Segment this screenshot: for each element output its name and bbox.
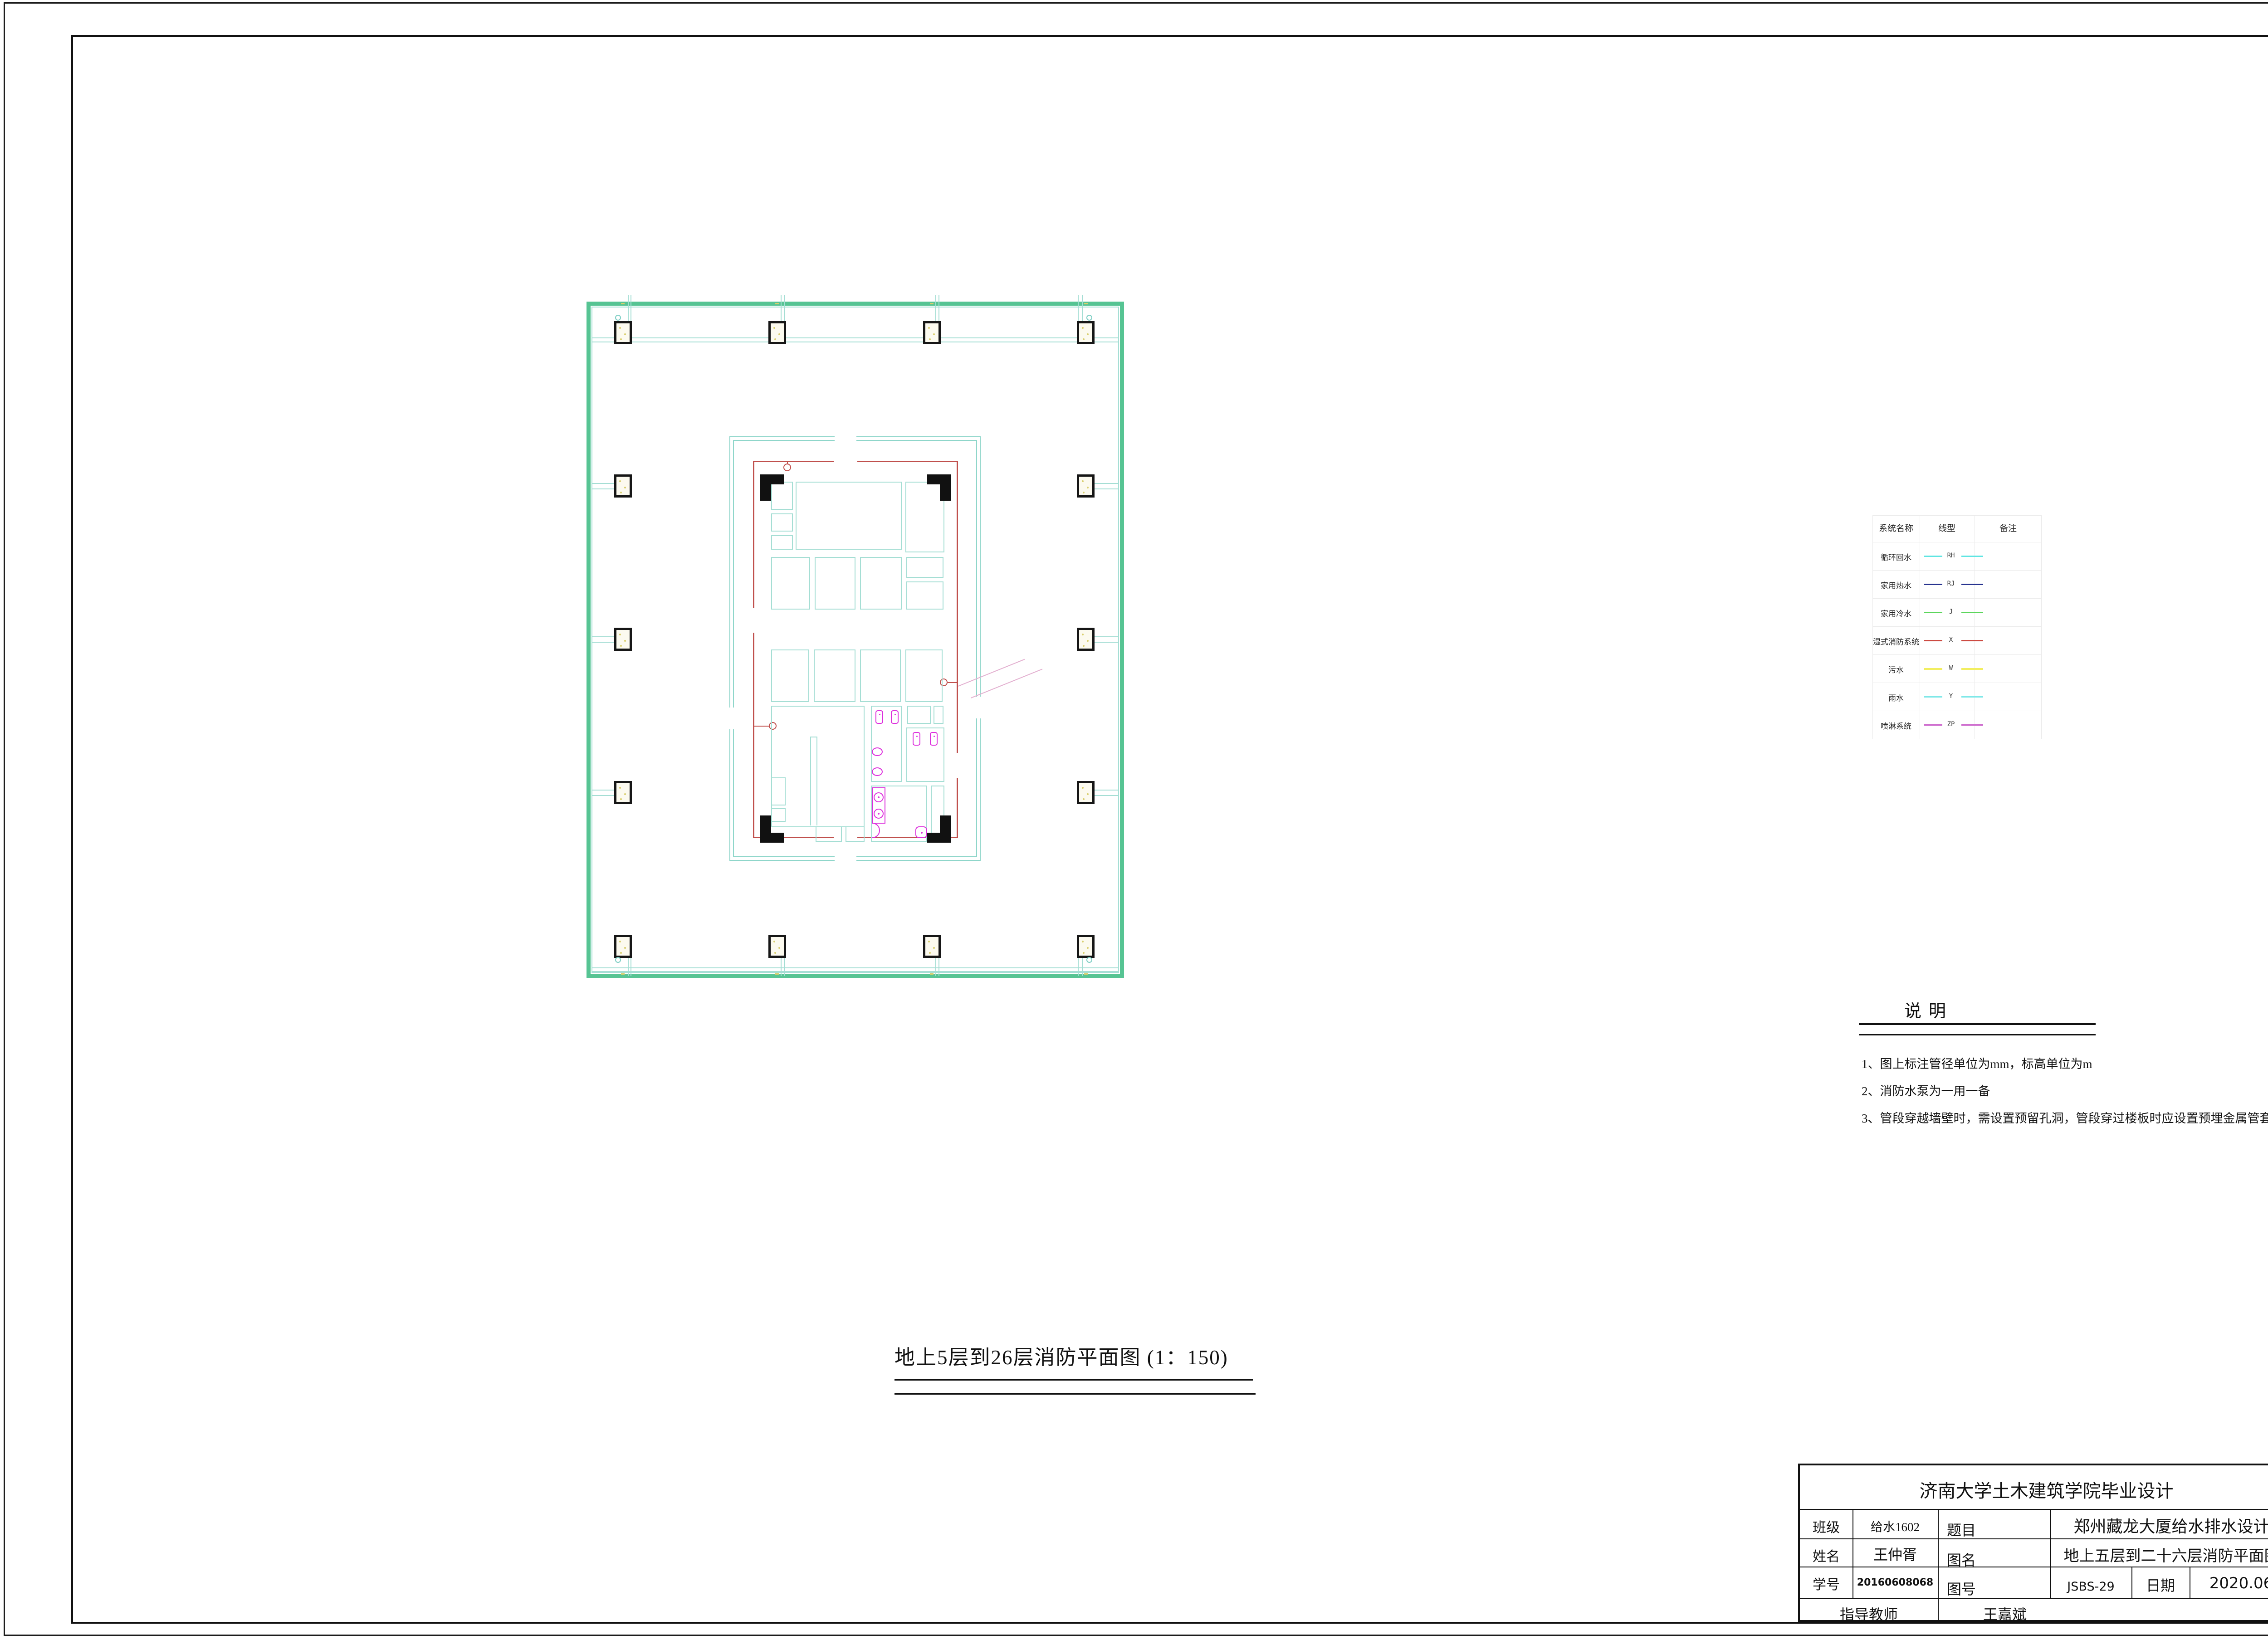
wall-stub	[591, 642, 614, 643]
grid-tick	[631, 958, 631, 976]
legend-header-system: 系统名称	[1869, 522, 1923, 534]
note-item: 2、消防水泵为一用一备	[1862, 1078, 2268, 1105]
wall-stub	[1095, 636, 1119, 637]
class-value: 给水1602	[1853, 1517, 1938, 1535]
axis-bubble-icon	[615, 957, 621, 963]
titleblock-header: 济南大学土木建筑学院毕业设计	[1800, 1476, 2268, 1503]
advisor-value: 王嘉斌	[1983, 1603, 2027, 1624]
axis-tick-icon	[1084, 973, 1088, 975]
caption-underline	[894, 1393, 1256, 1395]
drawing-no-value: JSBS-29	[2050, 1580, 2131, 1594]
column-marker	[1077, 321, 1095, 344]
subject-label: 题目	[1947, 1519, 1976, 1540]
fire-hydrant-icon	[783, 464, 791, 471]
notes-underline	[1859, 1034, 2096, 1035]
column-marker	[923, 321, 941, 344]
wall-stub	[1095, 488, 1119, 489]
title-block: 济南大学土木建筑学院毕业设计 班级 给水1602 题目 郑州藏龙大厦给水排水设计…	[1798, 1464, 2268, 1622]
wall-stub	[591, 488, 614, 489]
student-id-value: 20160608068	[1853, 1577, 1938, 1588]
grid-tick	[938, 958, 939, 976]
grid-tick	[784, 958, 785, 976]
column-marker	[1077, 474, 1095, 498]
wall-stub	[591, 790, 614, 791]
wall-stub	[1095, 790, 1119, 791]
advisor-label: 指导教师	[1800, 1603, 1938, 1624]
door-gap	[835, 854, 856, 862]
note-item: 3、管段穿越墙壁时，需设置预留孔洞，管段穿过楼板时应设置预埋金属管套	[1862, 1105, 2268, 1132]
column-marker	[614, 935, 632, 958]
grid-tick	[1078, 958, 1079, 976]
grid-tick	[628, 958, 629, 976]
grid-tick	[781, 958, 782, 976]
wall-stub	[1095, 483, 1119, 484]
legend-header-remark: 备注	[1981, 522, 2035, 534]
date-value: 2020.06	[2190, 1574, 2268, 1592]
axis-tick-icon	[621, 303, 625, 304]
sheet-inner-frame	[71, 35, 2268, 1624]
toilet-icon	[872, 767, 883, 776]
urinal-icon	[875, 710, 883, 724]
wall-stub	[591, 483, 614, 484]
column-marker	[614, 474, 632, 498]
slab-line	[591, 967, 1119, 968]
drawing-no-label: 图号	[1947, 1578, 1976, 1599]
axis-bubble-icon	[1086, 957, 1092, 963]
axis-tick-icon	[775, 303, 779, 304]
axis-tick-icon	[930, 973, 934, 975]
grid-tick	[631, 295, 631, 321]
drawing-sheet: 系统名称 线型 备注 循环回水 RH 家用热水 RJ 家用冷水 J 湿式消防系统…	[0, 0, 2268, 1640]
column-marker	[768, 935, 786, 958]
slab-line	[591, 337, 1119, 338]
legend-header-linetype: 线型	[1920, 522, 1974, 534]
caption-underline	[894, 1379, 1253, 1381]
slab-line	[591, 971, 1119, 972]
column-marker	[614, 781, 632, 804]
column-marker	[923, 935, 941, 958]
sink-icon	[915, 826, 927, 838]
door-gap	[728, 708, 735, 729]
grid-tick	[938, 295, 939, 321]
wall-stub	[1095, 642, 1119, 643]
wall-stub	[1095, 795, 1119, 796]
door-gap	[973, 697, 982, 718]
grid-tick	[935, 958, 936, 976]
slab-line	[591, 342, 1119, 342]
grid-tick	[628, 295, 629, 321]
column-marker	[1077, 628, 1095, 651]
column-marker	[614, 628, 632, 651]
washbasin-icon	[874, 809, 884, 819]
subject-value: 郑州藏龙大厦给水排水设计	[2050, 1513, 2268, 1537]
drawing-name-label: 图名	[1947, 1549, 1976, 1570]
column-marker	[614, 321, 632, 344]
axis-bubble-icon	[1086, 315, 1092, 321]
drawing-name-value: 地上五层到二十六层消防平面图	[2050, 1543, 2268, 1566]
notes-underline	[1859, 1023, 2096, 1025]
drawing-caption: 地上5层到26层消防平面图 (1：150)	[894, 1341, 1228, 1370]
column-marker	[1077, 935, 1095, 958]
name-label: 姓名	[1800, 1545, 1853, 1565]
washbasin-icon	[874, 792, 884, 802]
axis-tick-icon	[775, 973, 779, 975]
grid-tick	[1082, 958, 1083, 976]
date-label: 日期	[2131, 1574, 2190, 1595]
grid-tick	[1082, 295, 1083, 321]
grid-tick	[784, 295, 785, 321]
grid-tick	[1078, 295, 1079, 321]
column-marker	[768, 321, 786, 344]
wall-stub	[591, 795, 614, 796]
axis-tick-icon	[930, 303, 934, 304]
notes-title: 说明	[1904, 997, 1953, 1022]
urinal-icon	[930, 732, 938, 746]
class-label: 班级	[1800, 1516, 1853, 1536]
wall-stub	[591, 636, 614, 637]
student-id-label: 学号	[1800, 1573, 1853, 1593]
urinal-icon	[913, 732, 920, 746]
column-marker	[1077, 781, 1095, 804]
grid-tick	[781, 295, 782, 321]
axis-tick-icon	[621, 973, 625, 975]
grid-tick	[935, 295, 936, 321]
urinal-icon	[891, 710, 899, 724]
toilet-icon	[872, 747, 883, 756]
name-value: 王仲胥	[1853, 1543, 1938, 1564]
axis-bubble-icon	[615, 315, 621, 321]
axis-tick-icon	[1084, 303, 1088, 304]
note-item: 1、图上标注管径单位为mm，标高单位为m	[1862, 1050, 2268, 1078]
door-gap	[835, 434, 856, 442]
